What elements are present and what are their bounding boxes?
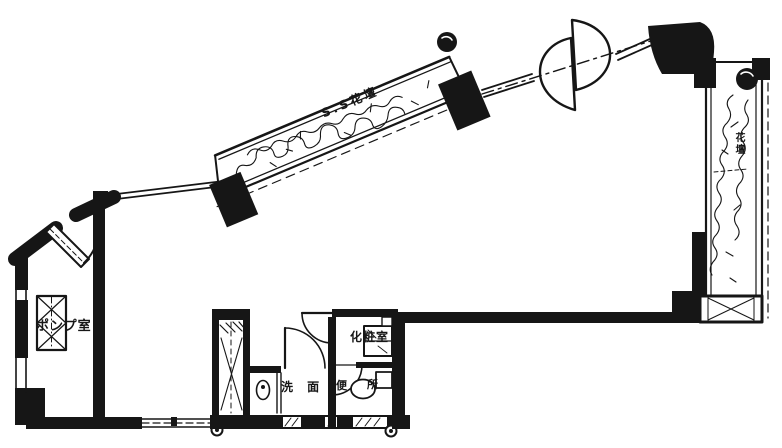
pump-room-label: ポンプ室 bbox=[36, 320, 92, 333]
powder-room-label: 化粧室 bbox=[350, 331, 389, 343]
sanitary-block bbox=[250, 309, 398, 429]
diagonal-window bbox=[100, 181, 224, 201]
washroom-label: 洗 面 bbox=[281, 381, 324, 393]
washroom-door bbox=[285, 328, 325, 368]
step-walls bbox=[392, 291, 704, 429]
duct-shaft bbox=[212, 309, 250, 429]
right-planter bbox=[692, 58, 770, 322]
cleaner-compartment bbox=[257, 373, 282, 413]
planting-texture bbox=[230, 76, 439, 186]
toilet-label-char-2: 所 bbox=[367, 379, 378, 390]
diagonal-planter bbox=[198, 51, 490, 228]
right-planter-label: 花壇 bbox=[733, 132, 743, 156]
toilet-label-char-1: 便 bbox=[336, 380, 347, 391]
powder-room-door bbox=[302, 313, 332, 343]
entrance-door-leaves bbox=[540, 20, 610, 110]
entrance bbox=[482, 20, 654, 110]
diagonal-planter-knob bbox=[437, 32, 457, 52]
right-planter-base-vent bbox=[700, 296, 762, 322]
right-planting-texture bbox=[710, 95, 748, 282]
floor-plan-sheet: ポンプ室 S.S花壇 花壇 化粧室 洗 面 便 所 bbox=[0, 0, 782, 448]
floor-plan-drawing bbox=[0, 0, 782, 448]
